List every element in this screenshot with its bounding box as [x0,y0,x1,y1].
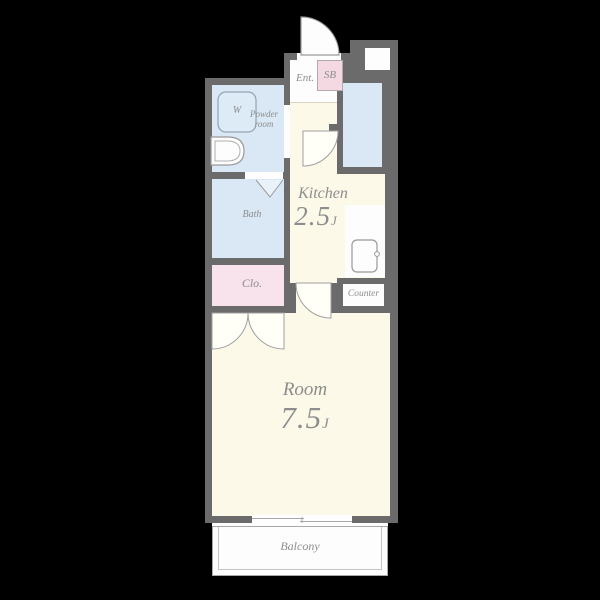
room-size-label: 7.5J [260,401,350,435]
kitchen-size-unit: J [331,213,338,228]
wc-floor [343,83,382,167]
room-label: Room [275,380,335,401]
kitchen-label: Kitchen [293,185,353,203]
balcony: Balcony [212,526,388,576]
bath-label: Bath [230,209,274,220]
powder-room-label: Powder room [241,110,287,130]
meter-box-floor [365,48,390,70]
powder-room-label-line2: room [255,119,274,129]
room-size-unit: J [322,416,330,432]
shoe-box-label: SB [324,69,336,81]
powder-room-label-line1: Powder [250,109,278,119]
kitchen-room-doorway [296,277,331,313]
bath-door-opening [245,172,283,179]
floorplan: Ent. SB W Powder room Bath Clo. Kitchen … [0,0,600,600]
entrance-step-line [290,102,337,103]
entrance-door-icon [301,17,339,55]
room-size-value: 7.5 [280,400,322,435]
shoe-box: SB [317,60,343,91]
kitchen-size-value: 2.5 [294,201,331,231]
fridge-alcove [345,205,385,277]
counter-label: Counter [343,289,384,299]
kitchen-size-label: 2.5J [286,202,346,232]
balcony-railing [218,527,382,570]
wall-segment-top-stub [343,53,350,78]
kitchen-door-stub [329,124,343,132]
closet-label: Clo. [230,277,274,290]
